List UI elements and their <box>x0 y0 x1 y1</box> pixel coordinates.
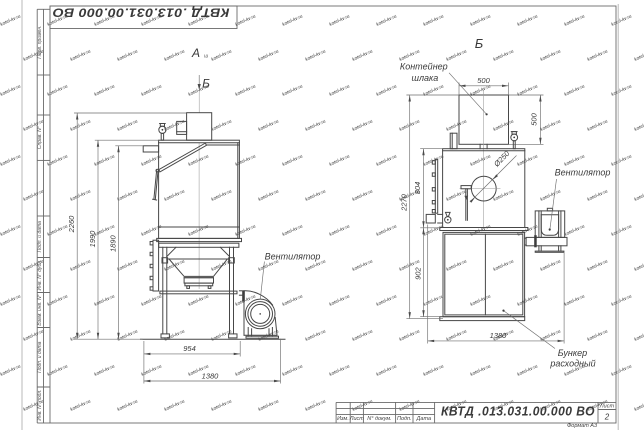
svg-text:Подп. и дата: Подп. и дата <box>37 221 43 253</box>
svg-text:2270: 2270 <box>399 193 408 212</box>
svg-text:Справ. N°: Справ. N° <box>37 126 43 149</box>
svg-text:Взам. инв. N°: Взам. инв. N° <box>37 294 43 325</box>
svg-text:Изм.: Изм. <box>337 416 349 422</box>
svg-text:Подп.: Подп. <box>397 416 412 422</box>
svg-text:1990: 1990 <box>88 230 97 248</box>
svg-text:2: 2 <box>604 413 610 422</box>
svg-text:902: 902 <box>414 267 423 280</box>
svg-text:Инв. N° подл.: Инв. N° подл. <box>37 389 43 420</box>
svg-text:Вентилятор: Вентилятор <box>555 168 611 178</box>
svg-text:расходный: расходный <box>549 359 595 369</box>
svg-text:500: 500 <box>530 112 539 125</box>
svg-text:Бункер: Бункер <box>558 348 587 358</box>
svg-text:954: 954 <box>183 344 196 353</box>
svg-text:Дата: Дата <box>416 416 432 422</box>
svg-text:Инв. N° дубл.: Инв. N° дубл. <box>37 260 43 291</box>
svg-text:N° докум.: N° докум. <box>367 416 391 422</box>
svg-text:Подп. и дата: Подп. и дата <box>37 341 43 373</box>
svg-text:КВТД .013.031.00.000 ВО: КВТД .013.031.00.000 ВО <box>441 404 595 418</box>
svg-text:1380: 1380 <box>490 331 508 340</box>
svg-text:шлака: шлака <box>411 73 438 83</box>
svg-text:А: А <box>191 46 200 60</box>
svg-text:Лист: Лист <box>599 404 615 410</box>
svg-text:804: 804 <box>413 182 422 195</box>
svg-text:1890: 1890 <box>108 235 117 253</box>
svg-text:Б: Б <box>202 77 210 91</box>
svg-text:КВТД .013.031.00.000 ВО: КВТД .013.031.00.000 ВО <box>53 6 230 18</box>
svg-text:Лист: Лист <box>349 416 365 422</box>
svg-text:1380: 1380 <box>202 371 220 380</box>
svg-text:Б: Б <box>475 36 484 51</box>
svg-text:Формат А3: Формат А3 <box>567 423 598 429</box>
svg-text:2260: 2260 <box>67 215 76 234</box>
svg-text:500: 500 <box>477 76 490 85</box>
svg-text:Вентилятор: Вентилятор <box>265 252 321 262</box>
svg-text:Контейнер: Контейнер <box>400 62 448 72</box>
svg-text:Перв. примен.: Перв. примен. <box>37 26 43 59</box>
